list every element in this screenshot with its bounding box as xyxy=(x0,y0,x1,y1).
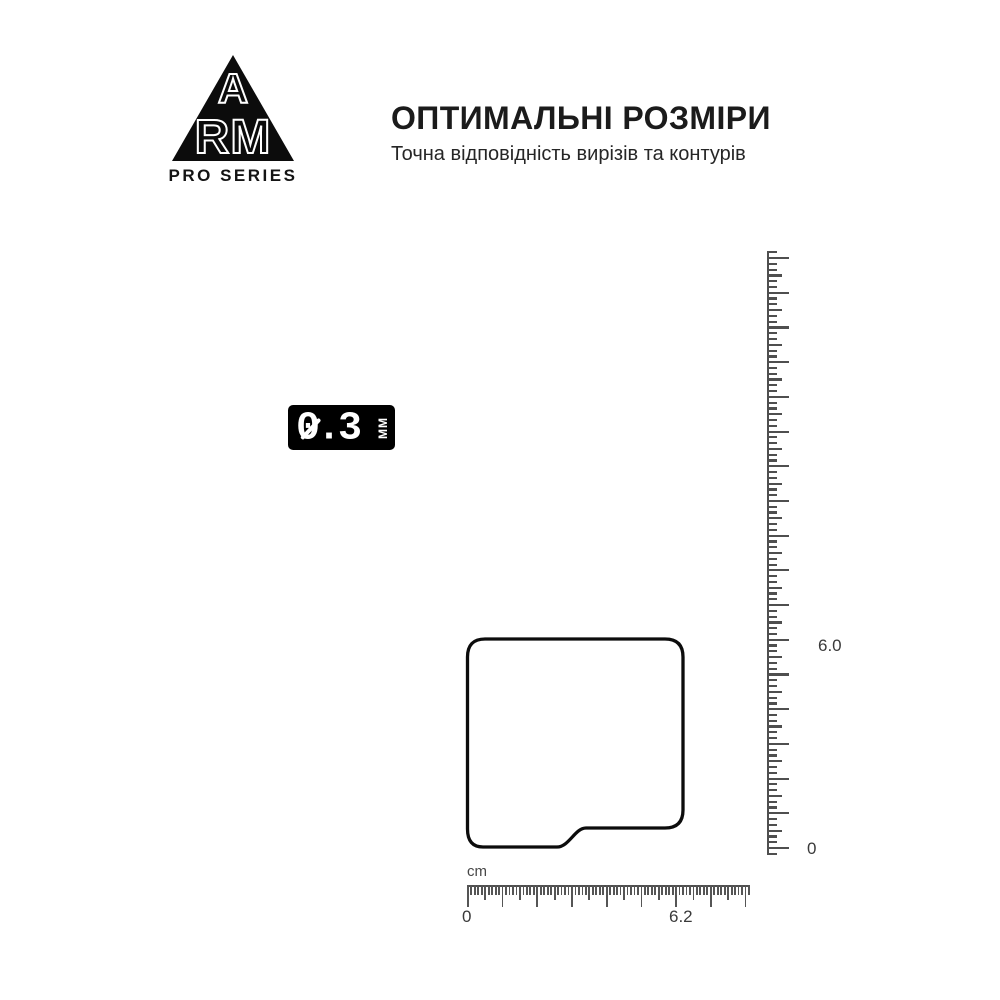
vertical-ruler-tick xyxy=(767,725,782,727)
vertical-ruler-tick xyxy=(767,477,777,479)
horizontal-ruler-tick xyxy=(550,885,552,895)
horizontal-ruler-tick xyxy=(529,885,531,895)
vertical-ruler-tick xyxy=(767,795,782,797)
vertical-ruler-tick xyxy=(767,662,777,664)
vertical-ruler-tick xyxy=(767,552,782,554)
horizontal-ruler-tick xyxy=(592,885,594,895)
vertical-ruler-tick xyxy=(767,309,782,311)
horizontal-ruler-tick xyxy=(703,885,705,895)
horizontal-ruler-tick xyxy=(557,885,559,895)
vertical-ruler-tick xyxy=(767,720,777,722)
vertical-ruler-tick xyxy=(767,610,777,612)
vertical-ruler-tick xyxy=(767,598,777,600)
vertical-ruler-tick xyxy=(767,344,782,346)
product-diagram-canvas: A RM PRO SERIES ОПТИМАЛЬНІ РОЗМІРИ Точна… xyxy=(0,0,1000,1000)
vertical-ruler-tick xyxy=(767,396,789,398)
vertical-ruler-tick xyxy=(767,506,777,508)
vertical-ruler-label-0: 0 xyxy=(807,840,816,859)
logo-letter-a: A xyxy=(172,68,294,110)
vertical-ruler-tick xyxy=(767,419,777,421)
horizontal-ruler-tick xyxy=(647,885,649,895)
horizontal-ruler-tick xyxy=(481,885,483,895)
vertical-ruler-tick xyxy=(767,448,782,450)
vertical-ruler-tick xyxy=(767,471,777,473)
horizontal-ruler-tick xyxy=(641,885,643,907)
vertical-ruler-tick xyxy=(767,656,782,658)
vertical-ruler-tick xyxy=(767,853,777,855)
vertical-ruler-tick xyxy=(767,454,777,456)
thickness-badge: 0.3 ММ xyxy=(288,405,395,450)
vertical-ruler-tick xyxy=(767,274,782,276)
logo-series-text: PRO SERIES xyxy=(160,166,306,186)
vertical-ruler-tick xyxy=(767,627,777,629)
logo-letters-rm: RM xyxy=(172,114,294,162)
horizontal-ruler-tick xyxy=(488,885,490,895)
horizontal-ruler-tick xyxy=(682,885,684,895)
horizontal-ruler-tick xyxy=(706,885,708,895)
vertical-ruler-tick xyxy=(767,621,782,623)
vertical-ruler-tick xyxy=(767,517,782,519)
horizontal-ruler-tick xyxy=(568,885,570,895)
vertical-ruler-tick xyxy=(767,639,789,641)
horizontal-ruler-tick xyxy=(491,885,493,895)
header: ОПТИМАЛЬНІ РОЗМІРИ Точна відповідність в… xyxy=(391,102,771,165)
vertical-ruler-tick xyxy=(767,384,777,386)
vertical-ruler-tick xyxy=(767,806,777,808)
vertical-ruler-tick xyxy=(767,783,777,785)
arm-logo: A RM PRO SERIES xyxy=(160,55,306,186)
horizontal-ruler-tick xyxy=(495,885,497,895)
vertical-ruler-tick xyxy=(767,818,777,820)
page-subtitle: Точна відповідність вирізів та контурів xyxy=(391,143,771,165)
horizontal-ruler-tick xyxy=(536,885,538,907)
vertical-ruler-tick xyxy=(767,685,777,687)
horizontal-ruler-tick xyxy=(609,885,611,895)
horizontal-ruler-tick xyxy=(672,885,674,895)
horizontal-ruler-tick xyxy=(533,885,535,895)
vertical-ruler-tick xyxy=(767,564,777,566)
horizontal-ruler-tick xyxy=(661,885,663,895)
vertical-ruler-tick xyxy=(767,604,789,606)
vertical-ruler-tick xyxy=(767,269,777,271)
vertical-ruler-tick xyxy=(767,731,777,733)
vertical-ruler-label-6-0: 6.0 xyxy=(818,637,842,656)
vertical-ruler-tick xyxy=(767,772,777,774)
horizontal-ruler-tick xyxy=(731,885,733,895)
horizontal-ruler-tick xyxy=(498,885,500,895)
horizontal-ruler-tick xyxy=(620,885,622,895)
horizontal-ruler-tick xyxy=(634,885,636,895)
horizontal-ruler-tick xyxy=(623,885,625,900)
horizontal-ruler-label-6-2: 6.2 xyxy=(669,908,693,927)
horizontal-ruler-tick xyxy=(679,885,681,895)
vertical-ruler-tick xyxy=(767,390,777,392)
horizontal-ruler-unit: cm xyxy=(467,864,487,881)
vertical-ruler-tick xyxy=(767,616,777,618)
vertical-ruler-tick xyxy=(767,778,789,780)
vertical-ruler-tick xyxy=(767,581,777,583)
horizontal-ruler-tick xyxy=(484,885,486,900)
vertical-ruler-tick xyxy=(767,350,777,352)
vertical-ruler-tick xyxy=(767,575,777,577)
vertical-ruler-tick xyxy=(767,702,777,704)
vertical-ruler-tick xyxy=(767,824,777,826)
horizontal-ruler-tick xyxy=(675,885,677,907)
vertical-ruler-tick xyxy=(767,754,777,756)
vertical-ruler-tick xyxy=(767,668,777,670)
horizontal-ruler-tick xyxy=(578,885,580,895)
logo-triangle-icon: A RM xyxy=(172,55,294,161)
vertical-ruler-tick xyxy=(767,280,777,282)
vertical-ruler-tick xyxy=(767,749,777,751)
vertical-ruler-tick xyxy=(767,569,789,571)
vertical-ruler-tick xyxy=(767,835,777,837)
vertical-ruler-tick xyxy=(767,297,777,299)
horizontal-ruler-tick xyxy=(554,885,556,900)
vertical-ruler-tick xyxy=(767,830,782,832)
vertical-ruler-tick xyxy=(767,691,782,693)
vertical-ruler-tick xyxy=(767,367,777,369)
vertical-ruler-tick xyxy=(767,315,777,317)
vertical-ruler-tick xyxy=(767,373,777,375)
horizontal-ruler-tick xyxy=(734,885,736,895)
horizontal-ruler-tick xyxy=(526,885,528,895)
horizontal-ruler-tick xyxy=(467,885,469,907)
vertical-ruler-tick xyxy=(767,402,777,404)
protector-path xyxy=(468,639,684,847)
horizontal-ruler-tick xyxy=(582,885,584,895)
vertical-ruler-tick xyxy=(767,413,782,415)
vertical-ruler-tick xyxy=(767,488,777,490)
vertical-ruler-tick xyxy=(767,494,777,496)
horizontal-ruler-tick xyxy=(696,885,698,895)
horizontal-ruler-tick xyxy=(516,885,518,895)
vertical-ruler-tick xyxy=(767,407,777,409)
screen-protector-outline xyxy=(464,635,690,855)
vertical-ruler-tick xyxy=(767,483,782,485)
vertical-ruler-tick xyxy=(767,841,777,843)
horizontal-ruler-tick xyxy=(588,885,590,900)
vertical-ruler-tick xyxy=(767,436,777,438)
horizontal-ruler-tick xyxy=(599,885,601,895)
horizontal-ruler-tick xyxy=(564,885,566,895)
vertical-ruler-tick xyxy=(767,321,777,323)
vertical-ruler-tick xyxy=(767,679,777,681)
horizontal-ruler-tick xyxy=(595,885,597,895)
horizontal-ruler-tick xyxy=(651,885,653,895)
vertical-ruler-tick xyxy=(767,292,789,294)
horizontal-ruler-tick xyxy=(738,885,740,895)
vertical-ruler-tick xyxy=(767,587,782,589)
vertical-ruler-tick xyxy=(767,442,777,444)
horizontal-ruler-tick xyxy=(613,885,615,895)
horizontal-ruler-tick xyxy=(561,885,563,895)
horizontal-ruler-tick xyxy=(686,885,688,895)
horizontal-ruler-tick xyxy=(519,885,521,900)
vertical-ruler-tick xyxy=(767,326,789,328)
vertical-ruler-tick xyxy=(767,737,777,739)
horizontal-ruler-tick xyxy=(654,885,656,895)
horizontal-ruler-tick xyxy=(575,885,577,895)
vertical-ruler-tick xyxy=(767,847,789,849)
vertical-ruler-tick xyxy=(767,673,789,675)
horizontal-ruler-tick xyxy=(523,885,525,895)
vertical-ruler-tick xyxy=(767,425,777,427)
vertical-ruler-tick xyxy=(767,644,777,646)
vertical-ruler-tick xyxy=(767,697,777,699)
horizontal-ruler-tick xyxy=(665,885,667,895)
horizontal-ruler-tick xyxy=(547,885,549,895)
horizontal-ruler-tick xyxy=(720,885,722,895)
horizontal-ruler-tick xyxy=(637,885,639,895)
horizontal-ruler-tick xyxy=(602,885,604,895)
horizontal-ruler-tick xyxy=(512,885,514,895)
vertical-ruler-tick xyxy=(767,465,789,467)
horizontal-ruler-tick xyxy=(630,885,632,895)
vertical-ruler-tick xyxy=(767,592,777,594)
page-title: ОПТИМАЛЬНІ РОЗМІРИ xyxy=(391,102,771,136)
horizontal-ruler-tick xyxy=(585,885,587,895)
vertical-ruler-tick xyxy=(767,714,777,716)
horizontal-ruler-tick xyxy=(502,885,504,907)
vertical-ruler-tick xyxy=(767,523,777,525)
horizontal-ruler-tick xyxy=(543,885,545,895)
vertical-ruler-tick xyxy=(767,511,777,513)
horizontal-ruler-tick xyxy=(540,885,542,895)
horizontal-ruler-tick xyxy=(644,885,646,895)
vertical-ruler-tick xyxy=(767,459,777,461)
vertical-ruler-tick xyxy=(767,743,789,745)
horizontal-ruler-tick xyxy=(616,885,618,895)
horizontal-ruler-tick xyxy=(477,885,479,895)
horizontal-ruler-tick xyxy=(724,885,726,895)
horizontal-ruler-tick xyxy=(727,885,729,900)
horizontal-ruler xyxy=(467,885,750,911)
horizontal-ruler-tick xyxy=(713,885,715,895)
horizontal-ruler-tick xyxy=(627,885,629,895)
thickness-unit: ММ xyxy=(376,417,390,439)
vertical-ruler-tick xyxy=(767,303,777,305)
horizontal-ruler-tick xyxy=(658,885,660,900)
horizontal-ruler-tick xyxy=(745,885,747,907)
vertical-ruler-tick xyxy=(767,558,777,560)
horizontal-ruler-tick xyxy=(699,885,701,895)
vertical-ruler-tick xyxy=(767,332,777,334)
horizontal-ruler-tick xyxy=(606,885,608,907)
horizontal-ruler-tick xyxy=(693,885,695,900)
vertical-ruler-tick xyxy=(767,251,777,253)
vertical-ruler-tick xyxy=(767,766,777,768)
horizontal-ruler-tick xyxy=(748,885,750,895)
horizontal-ruler-label-0: 0 xyxy=(462,908,471,927)
horizontal-ruler-tick xyxy=(571,885,573,907)
horizontal-ruler-tick xyxy=(470,885,472,895)
horizontal-ruler-tick xyxy=(710,885,712,907)
horizontal-ruler-tick xyxy=(505,885,507,895)
horizontal-ruler-tick xyxy=(474,885,476,895)
vertical-ruler-tick xyxy=(767,361,789,363)
vertical-ruler-tick xyxy=(767,801,777,803)
horizontal-ruler-tick xyxy=(689,885,691,895)
vertical-ruler-tick xyxy=(767,760,782,762)
vertical-ruler-tick xyxy=(767,355,777,357)
vertical-ruler-tick xyxy=(767,257,789,259)
vertical-ruler-tick xyxy=(767,500,789,502)
vertical-ruler-tick xyxy=(767,431,789,433)
vertical-ruler-tick xyxy=(767,812,789,814)
horizontal-ruler-tick xyxy=(509,885,511,895)
vertical-ruler-tick xyxy=(767,633,777,635)
vertical-ruler-tick xyxy=(767,338,777,340)
vertical-ruler-tick xyxy=(767,529,777,531)
horizontal-ruler-tick xyxy=(668,885,670,895)
thickness-value: 0.3 xyxy=(296,409,359,449)
vertical-ruler xyxy=(767,252,793,853)
vertical-ruler-tick xyxy=(767,535,789,537)
vertical-ruler-tick xyxy=(767,540,777,542)
vertical-ruler-tick xyxy=(767,263,777,265)
vertical-ruler-tick xyxy=(767,650,777,652)
horizontal-ruler-tick xyxy=(741,885,743,895)
vertical-ruler-tick xyxy=(767,789,777,791)
vertical-ruler-tick xyxy=(767,708,789,710)
vertical-ruler-tick xyxy=(767,286,777,288)
vertical-ruler-tick xyxy=(767,378,782,380)
horizontal-ruler-tick xyxy=(717,885,719,895)
vertical-ruler-tick xyxy=(767,546,777,548)
